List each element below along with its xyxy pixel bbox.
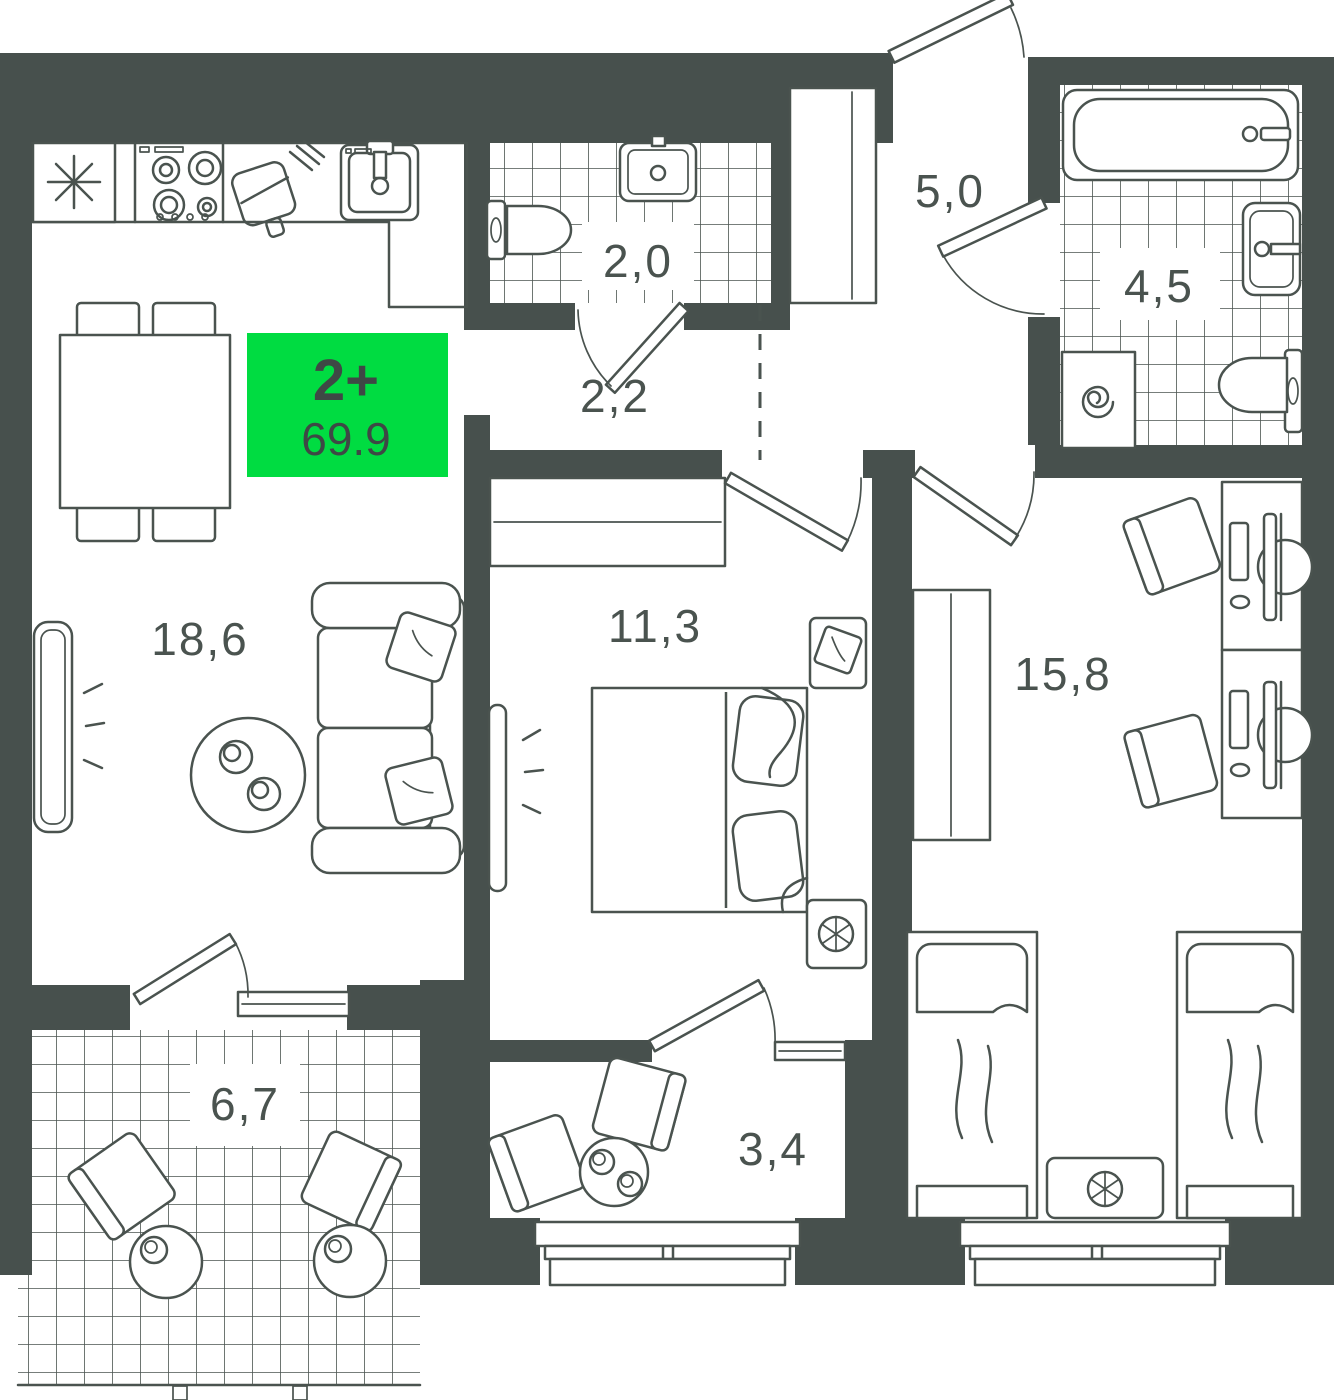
wardrobe2-icon [913,590,990,840]
bedroom-door-icon [725,473,861,551]
bedroom2-window [960,1222,1230,1285]
coffee-table-icon [191,718,305,832]
toilet-icon [487,201,571,259]
nightstand-icon [810,618,866,688]
room-label-loggia: 6,7 [210,1078,280,1130]
fridge-icon [48,156,100,208]
loggia2-door-icon [649,980,775,1051]
loggia-table2-icon [314,1225,386,1297]
desk-chair2-icon [1123,713,1219,809]
room-label-hallway: 5,0 [915,165,985,217]
bathroom-sink-icon [620,136,696,201]
unit-badge-rooms: 2+ [313,348,379,413]
desk2-icon [1222,650,1312,818]
vent-unit-icon [807,900,866,968]
floor-plan: 18,6 2,0 2,2 5,0 4,5 11,3 15,8 6,7 3,4 2… [0,0,1334,1400]
single-bed-icon [907,932,1037,1218]
room-label-kitchen-living: 18,6 [151,613,249,665]
living-balcony-window [238,992,349,1016]
loggia-window-mullion [173,1386,187,1400]
loggia2-chair2-icon [591,1056,687,1152]
bedroom2-door-icon [914,467,1034,545]
desk-chair-icon [1122,496,1222,596]
cutting-board-icon [230,141,324,244]
room-label-loggia2: 3,4 [738,1123,808,1175]
bedroom-wardrobe-icon [490,478,725,566]
stove-icon [140,147,221,220]
bedroom-balcony-window [775,1042,845,1060]
room-label-bedroom2: 15,8 [1014,648,1112,700]
room-label-bathroom-small: 2,0 [603,235,673,287]
vent-unit2-icon [1047,1158,1163,1218]
kitchen-counter [32,141,467,307]
tv-icon [34,622,104,832]
bathroom-sink2-icon [1243,203,1300,295]
double-bed-icon [592,688,807,912]
loggia-door-icon [134,934,248,1004]
floor-plan-drawing: 18,6 2,0 2,2 5,0 4,5 11,3 15,8 6,7 3,4 2… [0,0,1334,1400]
desk-icon [1222,482,1312,650]
loggia-window-mullion [293,1386,307,1400]
loggia2-chair-icon [487,1113,587,1213]
sofa-icon [312,583,464,873]
bathtub-icon [1063,90,1298,180]
single-bed2-icon [1177,932,1302,1218]
bedroom-tv-icon [489,705,543,891]
kitchen-sink-icon [341,141,418,220]
loggia2-window [535,1222,800,1285]
entry-door-icon [889,0,1024,63]
hall-wardrobe-icon [790,88,876,303]
room-label-bedroom: 11,3 [608,600,702,652]
washing-machine-icon [1062,352,1135,448]
unit-badge: 2+ 69.9 [247,333,448,477]
loggia-table-icon [130,1226,202,1298]
room-label-corridor: 2,2 [580,370,650,422]
unit-badge-area: 69.9 [301,413,391,465]
dining-table-icon [60,303,230,541]
room-label-bathroom: 4,5 [1124,260,1194,312]
loggia2-table-icon [580,1138,648,1206]
